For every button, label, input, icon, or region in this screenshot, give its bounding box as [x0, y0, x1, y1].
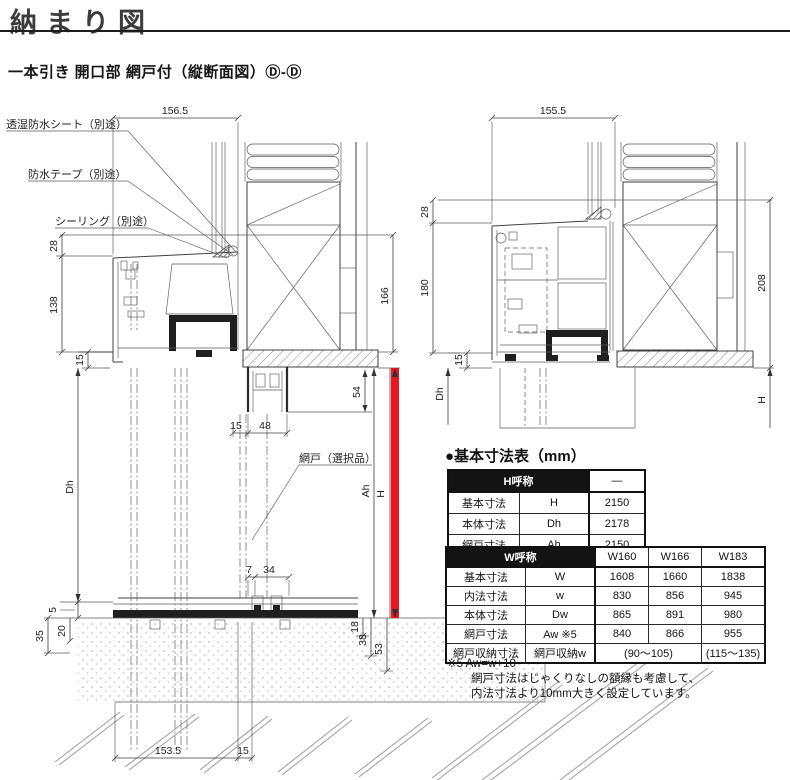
w-table-col-w183: W183: [702, 547, 766, 567]
title-underline: [0, 30, 790, 32]
dim-left-18: 18: [349, 621, 361, 633]
left-head-frame: [113, 252, 238, 362]
table-row: 内法寸法 w 830 856 945: [446, 587, 765, 606]
left-floor-and-deck: [78, 350, 378, 412]
dim-left-bottom-main: 153.5: [155, 745, 181, 757]
footnote-line-3: 内法寸法より10mm大きく設定しています。: [447, 687, 700, 702]
w-row-value: 955: [702, 625, 766, 644]
section-subtitle: 一本引き 開口部 網戸付（縦断面図）Ⓓ-Ⓓ: [8, 61, 302, 82]
dim-left-138: 138: [48, 296, 60, 314]
w-row-value: 1660: [649, 567, 702, 587]
h-table-header-label: H呼称: [448, 470, 589, 492]
dim-left-54: 54: [351, 386, 363, 398]
dim-left-28: 28: [48, 240, 60, 252]
dim-left-5: 5: [47, 607, 59, 613]
right-floor-and-deck: [448, 351, 753, 428]
w-row-value: 1608: [595, 567, 649, 587]
dim-right-15: 15: [453, 354, 465, 366]
dim-left-166: 166: [379, 287, 391, 305]
w-row-code: w: [526, 587, 596, 606]
dim-left-p15: 15: [230, 420, 242, 432]
dim-right-h: H: [756, 396, 768, 404]
page-title: 納まり図: [10, 1, 154, 40]
w-table-header-row: W呼称 W160 W166 W183: [446, 547, 765, 567]
table-row: 本体寸法 Dh 2178: [448, 514, 645, 535]
dim-right-208: 208: [756, 274, 768, 292]
h-table-header-row: H呼称 —: [448, 470, 645, 492]
w-row-label: 網戸寸法: [446, 625, 526, 644]
h-dimension-highlight-bar: [391, 368, 399, 618]
h-row-value: 2150: [589, 492, 645, 514]
h-row-code: Dh: [520, 514, 590, 535]
w-row-value: 945: [702, 587, 766, 606]
h-row-value: 2178: [589, 514, 645, 535]
h-spec-table: H呼称 — 基本寸法 H 2150 本体寸法 Dh 2178 網戸寸法 Ah 2…: [447, 469, 646, 557]
h-table-header-value: —: [589, 470, 645, 492]
dim-left-38: 38: [357, 634, 369, 646]
h-row-label: 本体寸法: [448, 514, 520, 535]
right-dimensions: 155.5 28 180 15 Dh 208: [419, 105, 774, 428]
table-row: 基本寸法 H 2150: [448, 492, 645, 514]
w-row-value: 830: [595, 587, 649, 606]
dim-left-p48: 48: [259, 420, 271, 432]
dim-left-53: 53: [373, 643, 385, 655]
dim-left-ah: Ah: [360, 484, 372, 497]
dim-left-h: H: [375, 490, 387, 498]
w-row-value: 856: [649, 587, 702, 606]
dim-left-34: 34: [263, 564, 275, 576]
dim-left-dh: Dh: [64, 480, 76, 494]
w-row-code: Dw: [526, 606, 596, 625]
w-row-code: W: [526, 567, 596, 587]
footnote-line-1: ※5 Aw=w+10: [447, 657, 700, 672]
w-table-header-label: W呼称: [446, 547, 595, 567]
h-row-label: 基本寸法: [448, 492, 520, 514]
w-row-value: 980: [702, 606, 766, 625]
footnote: ※5 Aw=w+10 網戸寸法はじゃくりなしの額縁も考慮して、 内法寸法より10…: [447, 657, 700, 702]
callout-tape: 防水テープ（別途）: [28, 167, 126, 181]
right-drawing: 155.5 28 180 15 Dh 208: [419, 105, 774, 428]
w-row-label: 基本寸法: [446, 567, 526, 587]
left-sealing-detail: [213, 245, 238, 257]
dim-left-20: 20: [56, 625, 68, 637]
dim-right-top-width: 155.5: [540, 105, 566, 117]
spec-table-title: ●基本寸法表（mm）: [445, 445, 586, 466]
table-row: 本体寸法 Dw 865 891 980: [446, 606, 765, 625]
w-row-label: 内法寸法: [446, 587, 526, 606]
w-storage-value-183: (115～135): [702, 644, 766, 664]
right-frame-section: [492, 221, 613, 362]
w-spec-table: W呼称 W160 W166 W183 基本寸法 W 1608 1660 1838…: [445, 546, 766, 664]
table-row: 基本寸法 W 1608 1660 1838: [446, 567, 765, 587]
dim-left-7: 7: [246, 564, 252, 576]
table-row: 網戸寸法 Aw ※5 840 866 955: [446, 625, 765, 644]
w-row-value: 1838: [702, 567, 766, 587]
right-sealing-detail: [586, 207, 611, 219]
right-wall-structure: [588, 142, 745, 351]
dim-left-35: 35: [34, 630, 46, 642]
callout-sheet: 透湿防水シート（別途）: [6, 117, 127, 131]
dim-right-28: 28: [419, 206, 431, 218]
dim-left-bottom-sub: 15: [237, 745, 249, 757]
callout-sealing: シーリング（別途）: [55, 214, 154, 228]
dim-right-dh: Dh: [434, 387, 446, 401]
dim-left-top-width: 156.5: [162, 105, 188, 117]
dim-right-180: 180: [419, 279, 431, 297]
w-row-code: Aw ※5: [526, 625, 596, 644]
h-row-code: H: [520, 492, 590, 514]
w-row-value: 840: [595, 625, 649, 644]
w-row-value: 865: [595, 606, 649, 625]
page: { "header": { "title": "納まり図", "subtitle…: [0, 0, 790, 780]
w-row-label: 本体寸法: [446, 606, 526, 625]
w-table-col-w160: W160: [595, 547, 649, 567]
w-row-value: 866: [649, 625, 702, 644]
w-table-col-w166: W166: [649, 547, 702, 567]
dim-left-15: 15: [74, 354, 86, 366]
w-row-value: 891: [649, 606, 702, 625]
footnote-line-2: 網戸寸法はじゃくりなしの額縁も考慮して、: [447, 672, 700, 687]
callout-screen: 網戸（選択品）: [299, 451, 376, 465]
left-callouts: 透湿防水シート（別途） 防水テープ（別途） シーリング（別途） 網戸（選択品）: [6, 117, 376, 540]
